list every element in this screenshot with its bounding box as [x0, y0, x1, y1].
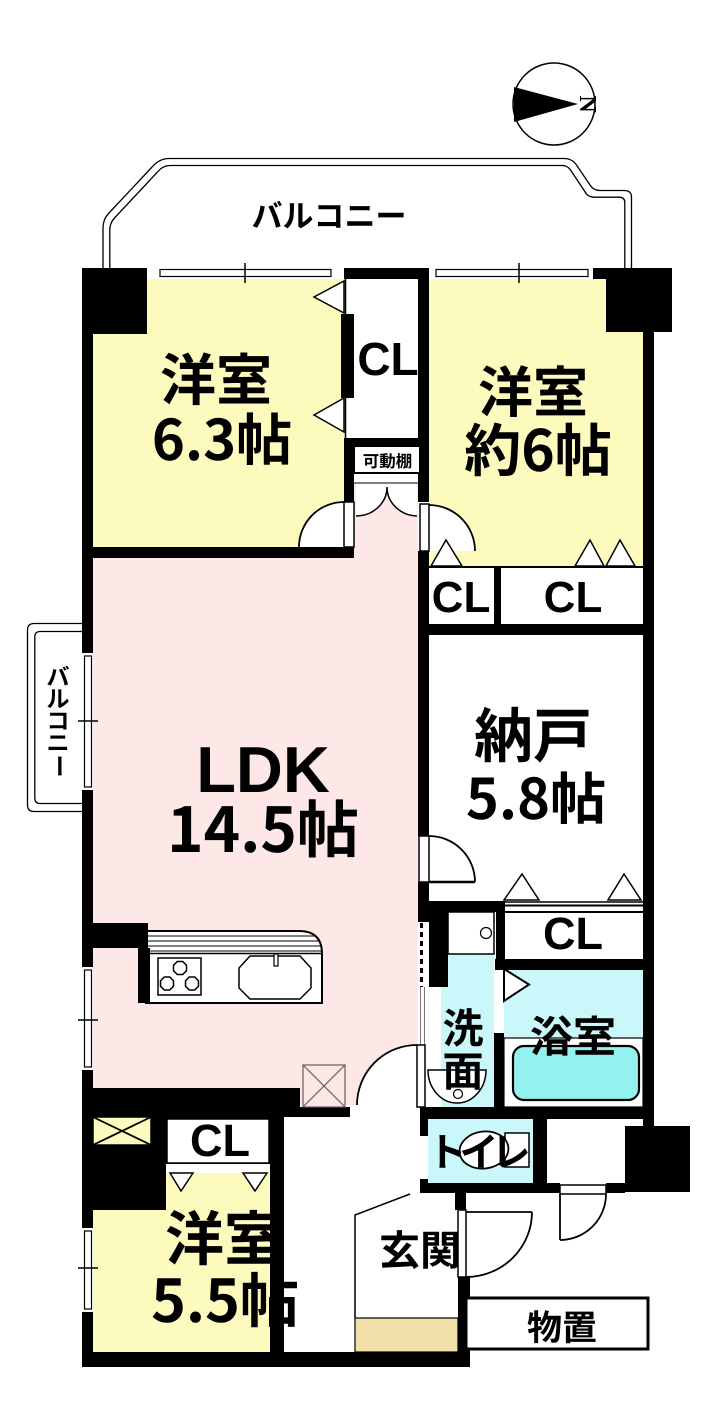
svg-text:CL: CL [357, 333, 418, 385]
svg-text:CL: CL [544, 573, 603, 622]
svg-text:CL: CL [190, 1115, 250, 1166]
svg-text:N: N [574, 95, 600, 113]
svg-text:LDK: LDK [196, 733, 330, 806]
svg-text:CL: CL [432, 573, 491, 622]
svg-text:CL: CL [543, 908, 603, 959]
